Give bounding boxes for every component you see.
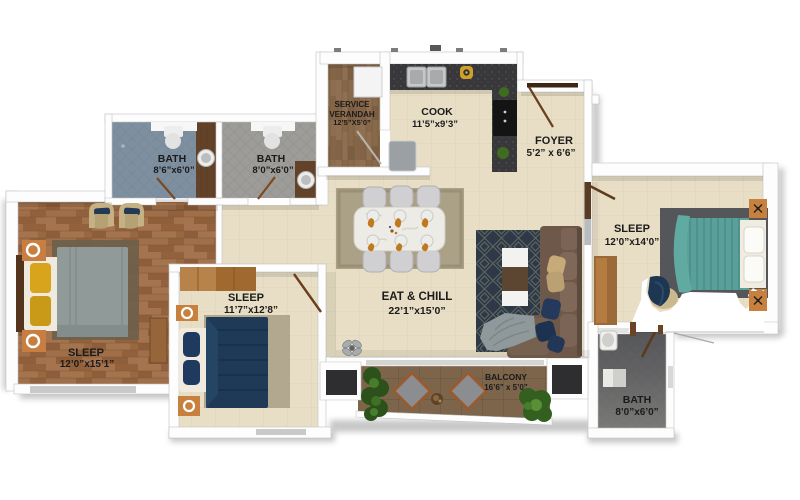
svg-text:SLEEP: SLEEP xyxy=(68,347,104,359)
svg-text:5’2” x 6’6”: 5’2” x 6’6” xyxy=(527,148,576,159)
svg-text:8’0”x6’0”: 8’0”x6’0” xyxy=(615,407,658,418)
svg-text:SERVICE: SERVICE xyxy=(335,100,371,109)
svg-text:SLEEP: SLEEP xyxy=(228,292,264,304)
svg-text:11’5”x9’3”: 11’5”x9’3” xyxy=(412,119,458,130)
svg-text:BATH: BATH xyxy=(158,153,186,165)
svg-text:12’5”X5’0”: 12’5”X5’0” xyxy=(333,118,371,127)
svg-text:BALCONY: BALCONY xyxy=(485,372,527,382)
svg-text:8’6”x6’0”: 8’6”x6’0” xyxy=(153,165,194,176)
svg-text:11’7”x12’8”: 11’7”x12’8” xyxy=(224,305,278,316)
svg-text:12’0”x15’1”: 12’0”x15’1” xyxy=(60,359,115,370)
svg-text:22’1”x15’0”: 22’1”x15’0” xyxy=(388,305,445,317)
svg-text:SLEEP: SLEEP xyxy=(614,223,650,235)
svg-text:BATH: BATH xyxy=(623,394,651,406)
svg-text:FOYER: FOYER xyxy=(535,135,573,147)
svg-text:8’0”x6’0”: 8’0”x6’0” xyxy=(252,165,293,176)
svg-text:16’6” x 5’0”: 16’6” x 5’0” xyxy=(484,383,528,392)
svg-text:12’0”x14’0”: 12’0”x14’0” xyxy=(605,237,660,248)
svg-text:COOK: COOK xyxy=(421,106,453,118)
svg-text:BATH: BATH xyxy=(257,153,285,165)
svg-text:EAT & CHILL: EAT & CHILL xyxy=(382,291,453,303)
